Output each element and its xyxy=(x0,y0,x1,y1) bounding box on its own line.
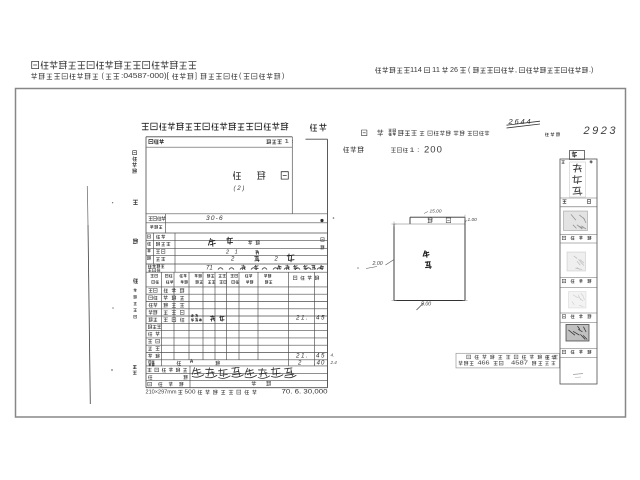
svg-text:2 1: 2 1 xyxy=(225,250,240,256)
svg-text:]: ] xyxy=(195,73,197,80)
svg-text:2.00: 2.00 xyxy=(372,261,383,267)
svg-text:30-6: 30-6 xyxy=(206,215,224,222)
svg-text:26: 26 xyxy=(450,67,458,74)
svg-text:2923: 2923 xyxy=(583,125,618,137)
svg-text:70. 6. 30,000: 70. 6. 30,000 xyxy=(282,389,329,395)
svg-text:.40: .40 xyxy=(314,361,325,367)
svg-text:71: 71 xyxy=(206,265,213,271)
svg-text:466: 466 xyxy=(478,361,490,367)
svg-text:1.00: 1.00 xyxy=(468,217,478,223)
svg-text:21.: 21. xyxy=(295,352,309,359)
svg-text:45: 45 xyxy=(316,352,326,359)
svg-text:5.00: 5.00 xyxy=(421,302,431,308)
svg-text:210×297mm: 210×297mm xyxy=(146,390,177,396)
svg-text:2: 2 xyxy=(230,257,235,263)
svg-text:2: 2 xyxy=(274,256,279,262)
svg-text:15.00: 15.00 xyxy=(430,209,442,215)
svg-text:1 :: 1 : xyxy=(410,147,420,154)
svg-text:114: 114 xyxy=(410,67,422,74)
svg-text:.): .) xyxy=(589,67,593,74)
svg-text:): ) xyxy=(282,73,284,80)
svg-text::04587-000)[: :04587-000)[ xyxy=(121,73,169,80)
svg-text:4.: 4. xyxy=(331,352,335,357)
svg-text:11: 11 xyxy=(432,67,440,74)
svg-text:500: 500 xyxy=(185,390,196,396)
svg-text:200: 200 xyxy=(424,144,443,155)
svg-text:( 2 ): ( 2 ) xyxy=(234,185,245,192)
svg-text:2.4: 2.4 xyxy=(330,360,338,365)
svg-text:2: 2 xyxy=(297,361,302,367)
svg-text:21.: 21. xyxy=(295,314,309,321)
svg-text:45: 45 xyxy=(316,314,326,321)
svg-text:1 :: 1 : xyxy=(285,139,295,145)
svg-text:4587: 4587 xyxy=(511,361,528,367)
svg-text:,: , xyxy=(515,67,517,74)
